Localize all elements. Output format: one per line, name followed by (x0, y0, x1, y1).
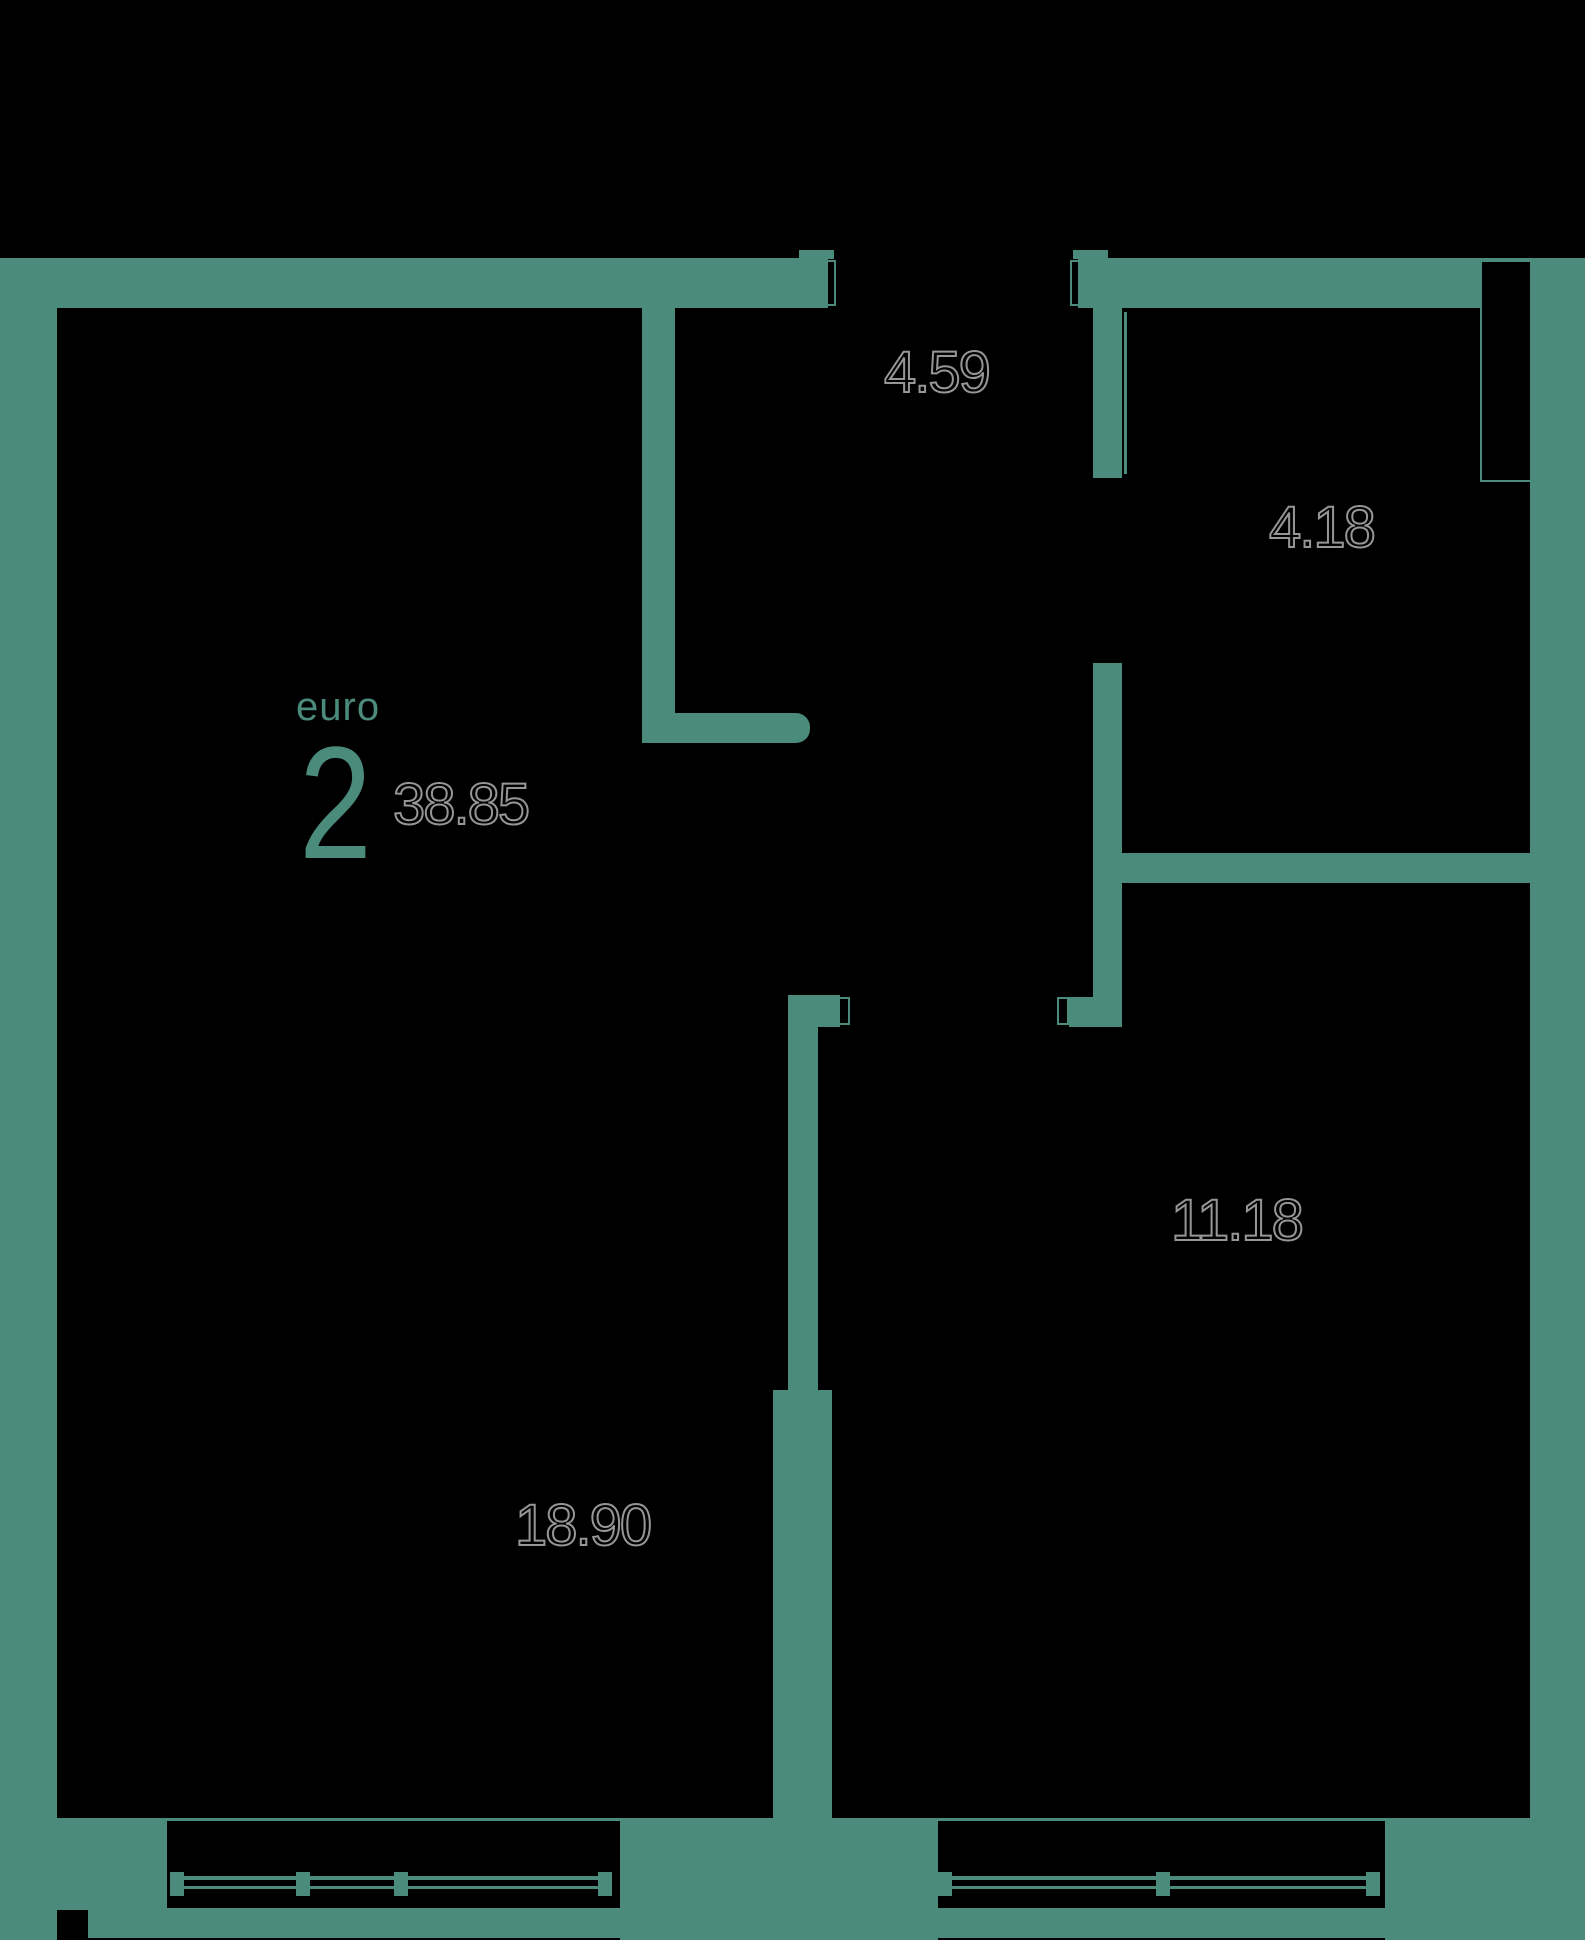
total-area-label: 38.85 (393, 776, 528, 834)
wall-bathroom-left-upper (1093, 308, 1122, 478)
entrance-door-jamb-left (826, 260, 836, 306)
window2-inner-face-line (938, 1818, 1385, 1821)
window1-jamb-1 (170, 1872, 184, 1896)
bathroom-door-leaf-line (1124, 312, 1127, 474)
window1-inner-face-line (167, 1818, 620, 1821)
floor-plan: euro 2 38.85 4.59 4.18 11.18 18.90 (0, 0, 1585, 1940)
hallway-area-label: 4.59 (884, 344, 989, 402)
entrance-frame-tab-right (1073, 250, 1108, 259)
wall-hallway-left-return (642, 713, 810, 743)
wall-bathroom-left-stub (1069, 997, 1095, 1027)
window2-jamb-3 (1366, 1872, 1380, 1896)
entrance-door-jamb-right (1070, 260, 1080, 306)
window2-jamb-1 (938, 1872, 952, 1896)
right-wall-window-niche (1480, 260, 1532, 482)
window2-jamb-2 (1156, 1872, 1170, 1896)
unit-rooms-count: 2 (299, 723, 372, 883)
bedroom-area-label: 11.18 (1171, 1192, 1302, 1250)
bathroom-area-label: 4.18 (1269, 499, 1374, 557)
wall-hallway-left-vertical (642, 308, 675, 713)
wall-bedroom-left-upper (788, 995, 818, 1393)
window1-jamb-4 (598, 1872, 612, 1896)
bedroom-door-jamb-right (1057, 997, 1069, 1025)
wall-bottom-left-block (0, 1818, 167, 1910)
wall-bathroom-bottom (1122, 853, 1530, 883)
window1-glazing-line-b (180, 1886, 606, 1889)
entrance-frame-tab-left (799, 250, 834, 259)
bedroom-door-jamb-left (838, 997, 850, 1025)
wall-top-left-segment (0, 258, 828, 308)
window1-jamb-2 (296, 1872, 310, 1896)
wall-right-outer (1530, 258, 1585, 1940)
wall-left-outer (0, 258, 57, 1940)
window1-jamb-3 (394, 1872, 408, 1896)
wall-bottom-outer-strip (88, 1908, 1585, 1938)
living-kitchen-area-label: 18.90 (515, 1497, 650, 1555)
wall-bedroom-left-lower (773, 1390, 832, 1822)
window1-glazing-line-a (172, 1876, 612, 1880)
wall-bathroom-left-lower (1093, 663, 1122, 1027)
